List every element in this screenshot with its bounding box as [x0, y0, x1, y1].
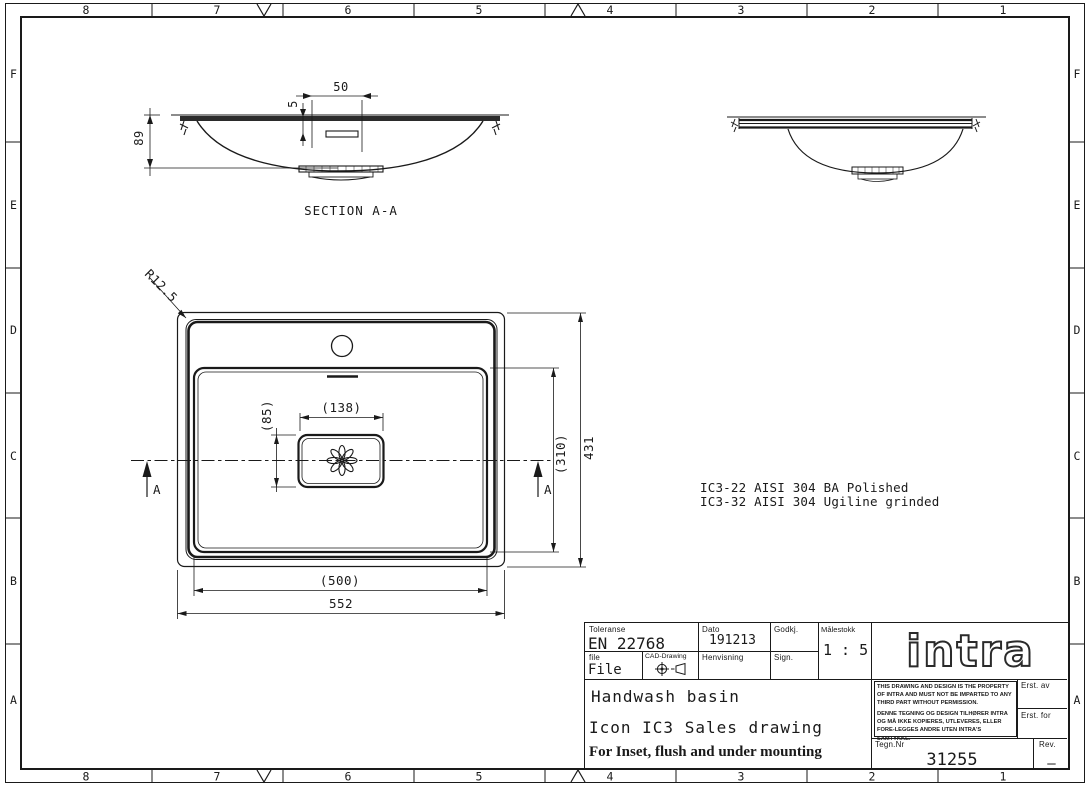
grid-label: A	[10, 693, 17, 707]
dato-value: 191213	[709, 633, 756, 648]
godkj-label: Godkj.	[774, 625, 798, 634]
section-marker-label-right: A	[544, 482, 552, 497]
mounting-clip-left	[731, 119, 738, 132]
section-view	[144, 93, 509, 180]
grid-label: 7	[214, 770, 221, 784]
note-variant-2: IC3-32 AISI 304 Ugiline grinded	[700, 495, 940, 509]
dim-label-89: 89	[132, 130, 146, 145]
grid-label: C	[1074, 449, 1081, 463]
grid-label: 4	[607, 3, 614, 17]
grid-label: D	[1074, 323, 1081, 337]
toleranse-label: Toleranse	[589, 625, 626, 634]
grid-label: 6	[345, 3, 352, 17]
grid-label: 6	[345, 770, 352, 784]
drawing-sheet: 8 7 6 5 4 3 2 1 8 7 6 5 4 3 2 1 F E D C …	[0, 0, 1090, 787]
section-marker-right	[534, 461, 543, 497]
dim-label-310: (310)	[553, 434, 568, 474]
grid-label: B	[1074, 574, 1081, 588]
tegnnr-label: Tegn.Nr	[875, 740, 904, 749]
dim-label-radius: R12.5	[142, 266, 181, 305]
dim-85	[271, 428, 296, 492]
drawing-title: Handwash basin	[591, 687, 740, 706]
file-label: file	[589, 653, 600, 662]
malestokk-label: Målestokk	[821, 625, 855, 634]
sign-label: Sign.	[774, 653, 793, 662]
rev-label: Rev.	[1039, 740, 1056, 749]
drawing-mounting-note: For Inset, flush and under mounting	[589, 744, 822, 761]
section-marker-label-left: A	[153, 482, 161, 497]
material-notes: IC3-22 AISI 304 BA Polished IC3-32 AISI …	[700, 481, 940, 508]
intra-logo: intra	[871, 623, 1070, 677]
grid-label: F	[10, 67, 17, 81]
dim-label-5: 5	[286, 100, 300, 108]
section-marker-left	[143, 461, 152, 497]
cad-drawing-label: CAD-Drawing	[645, 653, 687, 660]
grid-label: E	[1074, 198, 1081, 212]
property-notice-no: DENNE TEGNING OG DESIGN TILHØRER INTRA O…	[877, 710, 1014, 742]
grid-label: 8	[83, 770, 90, 784]
cad-drawing-icon	[653, 661, 689, 677]
grid-label: 4	[607, 770, 614, 784]
dim-310	[490, 368, 559, 552]
mounting-clip-left	[180, 121, 188, 135]
grid-label: F	[1074, 67, 1081, 81]
grid-label: 1	[1000, 3, 1007, 17]
dim-431	[507, 313, 586, 567]
dim-label-85: (85)	[259, 400, 274, 432]
grid-label: 5	[476, 770, 483, 784]
dim-138	[300, 413, 383, 431]
section-view-title: SECTION A-A	[304, 203, 398, 218]
side-view	[727, 117, 986, 182]
grid-label: B	[10, 574, 17, 588]
mounting-clip-right	[973, 119, 980, 132]
grid-label: 7	[214, 3, 221, 17]
grid-label: 2	[869, 770, 876, 784]
mounting-clip-right	[492, 121, 500, 135]
grid-label: C	[10, 449, 17, 463]
drawing-subtitle: Icon IC3 Sales drawing	[589, 718, 823, 737]
grid-label: 2	[869, 3, 876, 17]
grid-label: 1	[1000, 770, 1007, 784]
property-notice: THIS DRAWING AND DESIGN IS THE PROPERTY …	[874, 681, 1017, 737]
drain-side	[852, 167, 903, 182]
tap-hole	[332, 336, 353, 357]
malestokk-value: 1 : 5	[823, 641, 868, 659]
dim-label-431: 431	[581, 436, 596, 460]
grid-label: 8	[83, 3, 90, 17]
title-block: Toleranse EN 22768 Dato 191213 Godkj. Må…	[584, 622, 1069, 769]
grid-label: D	[10, 323, 17, 337]
erst-for-label: Erst. for	[1021, 711, 1051, 720]
dim-label-500: (500)	[320, 573, 360, 588]
file-value: File	[588, 662, 622, 678]
tegnnr-value: 31255	[871, 750, 1033, 770]
grid-label: E	[10, 198, 17, 212]
dim-label-50: 50	[333, 80, 348, 94]
dim-5	[300, 103, 306, 146]
dim-50	[296, 93, 378, 152]
grid-label: 3	[738, 770, 745, 784]
dim-label-552: 552	[329, 596, 353, 611]
erst-av-label: Erst. av	[1021, 681, 1050, 690]
grid-label: A	[1074, 693, 1081, 707]
dim-label-138: (138)	[321, 400, 361, 415]
plan-view	[131, 278, 586, 619]
grid-label: 3	[738, 3, 745, 17]
note-variant-1: IC3-22 AISI 304 BA Polished	[700, 481, 940, 495]
grid-label: 5	[476, 3, 483, 17]
toleranse-value: EN 22768	[588, 634, 665, 653]
henvisning-label: Henvisning	[702, 653, 744, 662]
rev-value: —	[1033, 756, 1070, 772]
property-notice-en: THIS DRAWING AND DESIGN IS THE PROPERTY …	[877, 683, 1014, 707]
